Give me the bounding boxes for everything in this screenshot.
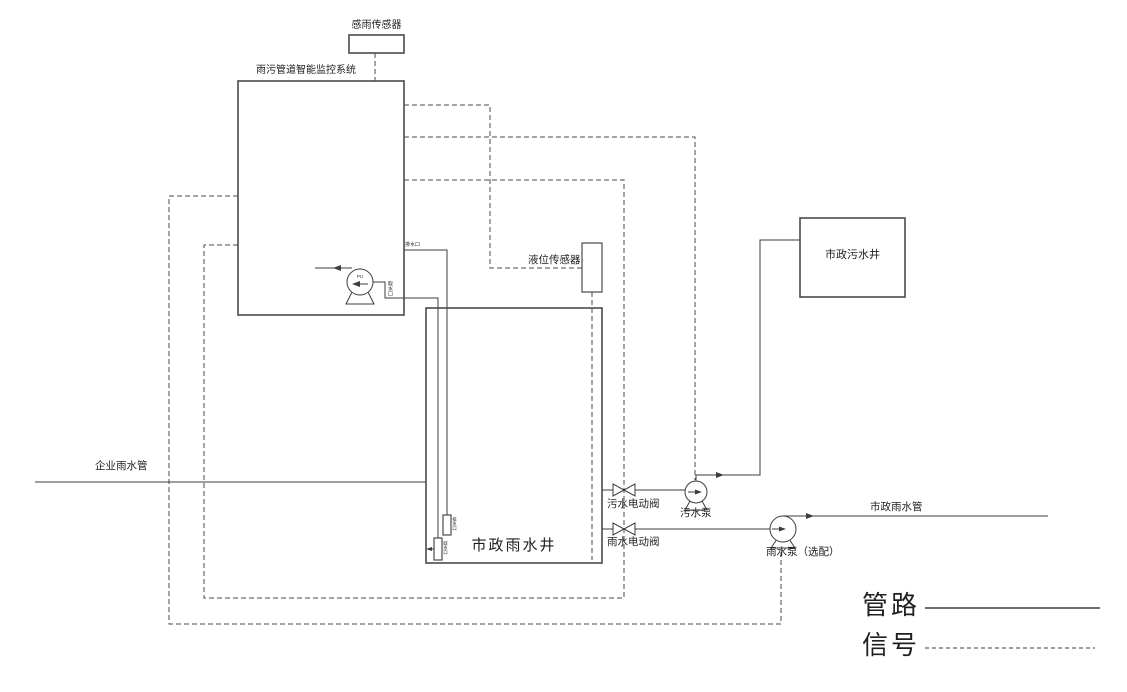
drain-end-label: 排水口 <box>452 517 457 531</box>
boxes <box>238 35 905 563</box>
sewage-discharge-line <box>696 240 800 481</box>
rainwater-well-label: 市政雨水井 <box>426 538 602 553</box>
diagram-canvas: 感雨传感器 雨污管道智能监控系统 液位传感器 市政污水井 市政雨水井 企业雨水管… <box>0 0 1127 692</box>
municipal-rain-pipe-label: 市政雨水管 <box>870 502 923 513</box>
monitoring-system-label: 雨污管道智能监控系统 <box>256 66 356 76</box>
level-sensor-box <box>582 243 602 292</box>
sewage-valve-label: 污水电动阀 <box>607 499 660 510</box>
municipal-rain-arrow <box>806 513 814 519</box>
sewage-pump-symbol <box>685 481 707 510</box>
monitoring-system-box <box>238 81 404 315</box>
water-intake-port-label: 取水口 <box>387 281 392 296</box>
enterprise-rain-pipe-label: 企业雨水管 <box>95 461 148 472</box>
legend-lines <box>925 608 1100 648</box>
rain-pump-symbol <box>770 516 796 548</box>
rain-pump-label: 雨水泵（选配） <box>766 547 840 558</box>
sewage-valve-symbol <box>613 484 635 496</box>
level-sensor-label: 液位传感器 <box>528 255 581 266</box>
sewage-well-label: 市政污水井 <box>800 250 905 261</box>
sewage-pump-label: 污水泵 <box>680 508 712 519</box>
legend-pipeline-label: 管路 <box>862 592 920 618</box>
rain-sensor-label: 感雨传感器 <box>349 21 404 31</box>
legend-signal-label: 信号 <box>862 632 920 658</box>
drain-end-box <box>443 515 451 535</box>
rain-sensor-box <box>349 35 404 53</box>
diagram-linework <box>0 0 1127 692</box>
drain-outlet-port-label: 排水口 <box>405 243 420 248</box>
signal-level-sensor-line <box>404 105 582 268</box>
signal-loop-outer <box>169 196 781 624</box>
sewage-discharge-arrow <box>716 472 724 478</box>
monitor-pump-tag: PU <box>353 275 367 280</box>
water-intake-pipe <box>373 282 438 538</box>
monitor-discharge-arrow <box>333 265 341 271</box>
rain-valve-label: 雨水电动阀 <box>607 537 660 548</box>
intake-end-label: 取水口 <box>443 541 448 555</box>
